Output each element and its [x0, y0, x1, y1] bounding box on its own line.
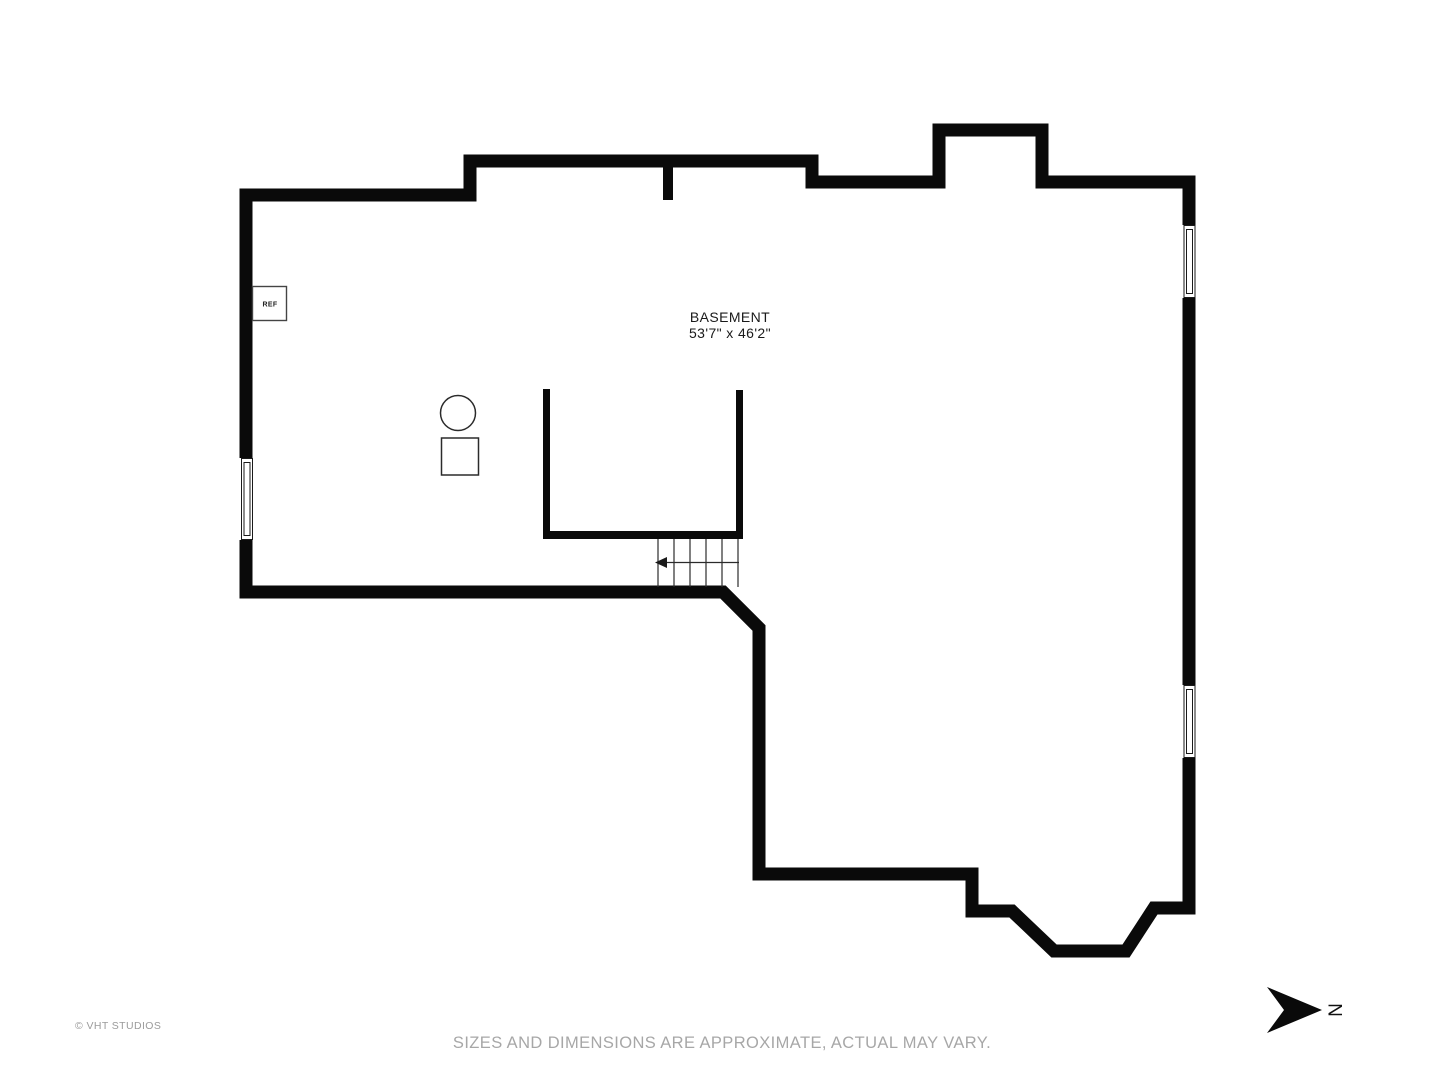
utility-circle-symbol — [441, 396, 476, 431]
north-arrow-icon — [1267, 987, 1322, 1033]
window-symbol-right-upper — [1182, 225, 1197, 298]
north-letter: N — [1324, 1003, 1345, 1017]
refrigerator-label: REF — [263, 302, 278, 309]
room-label: BASEMENT — [690, 309, 770, 325]
floorplan-canvas: REF BASEMENT 53'7" x 46'2" N © VHT STUDI… — [0, 0, 1440, 1080]
room-dimensions: 53'7" x 46'2" — [689, 325, 771, 341]
staircase — [655, 539, 739, 587]
copyright-text: © VHT STUDIOS — [75, 1020, 161, 1032]
north-arrow: N — [1267, 987, 1345, 1033]
disclaimer-text: SIZES AND DIMENSIONS ARE APPROXIMATE, AC… — [453, 1034, 991, 1052]
exterior-wall-outline — [246, 130, 1189, 951]
window-symbol-right-lower — [1182, 685, 1197, 758]
utility-square-symbol — [442, 438, 479, 475]
stairs-direction-arrow-icon — [655, 557, 667, 568]
window-symbol-left — [240, 458, 254, 540]
floorplan-page: REF BASEMENT 53'7" x 46'2" N © VHT STUDI… — [0, 0, 1440, 1080]
refrigerator-symbol: REF — [253, 287, 287, 321]
interior-room-walls — [543, 389, 743, 539]
